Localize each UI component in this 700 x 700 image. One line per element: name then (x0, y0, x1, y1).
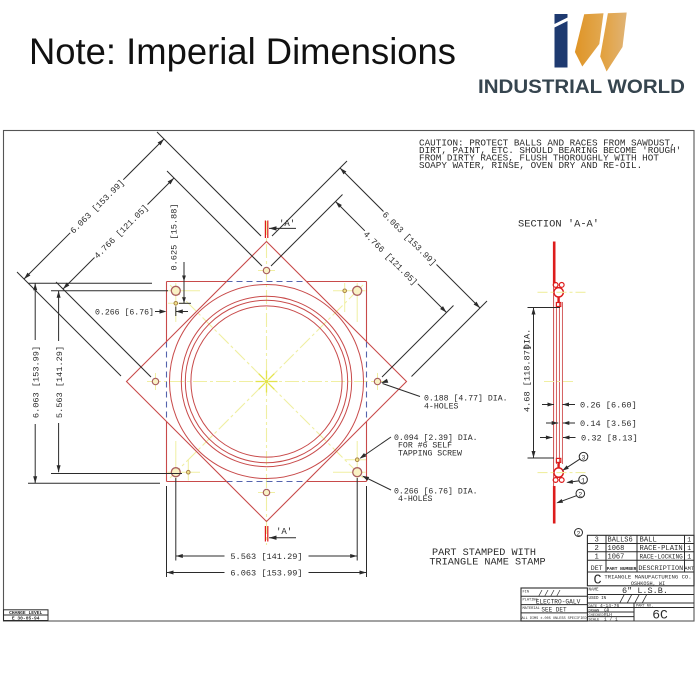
svg-text:DIA.: DIA. (522, 329, 532, 350)
svg-text:0.14 [3.56]: 0.14 [3.56] (580, 419, 637, 429)
svg-text:4-HOLES: 4-HOLES (424, 402, 458, 411)
svg-text:5.563 [141.29]: 5.563 [141.29] (230, 552, 302, 562)
svg-text:USED IN: USED IN (589, 597, 607, 601)
svg-text:FIN: FIN (523, 591, 529, 595)
svg-text:'A': 'A' (279, 219, 295, 229)
svg-text:1068: 1068 (608, 545, 625, 553)
svg-text:3: 3 (582, 455, 586, 462)
svg-text:ELECTRO-GALV: ELECTRO-GALV (536, 598, 581, 605)
svg-text:Note: Imperial Dimensions: Note: Imperial Dimensions (29, 31, 456, 72)
svg-text:2: 2 (577, 530, 581, 537)
svg-text:MATERIAL: MATERIAL (523, 607, 540, 611)
svg-text:SEE DET: SEE DET (541, 607, 567, 614)
svg-text:SECTION 'A-A': SECTION 'A-A' (518, 219, 599, 231)
svg-text:DRAWN: DRAWN (589, 609, 600, 613)
svg-text:PART NO.: PART NO. (636, 605, 653, 609)
svg-text:ALL DIMS ±.005 UNLESS SPECIFIE: ALL DIMS ±.005 UNLESS SPECIFIED (521, 617, 586, 621)
svg-text:DATE: DATE (589, 605, 598, 609)
svg-text:DET: DET (591, 565, 603, 572)
svg-text:BALLS6: BALLS6 (608, 537, 633, 545)
svg-text:CHECKED: CHECKED (589, 614, 604, 618)
svg-text:DESCRIPTION: DESCRIPTION (638, 565, 683, 573)
svg-text:SOAPY WATER, RINSE, OVEN DRY A: SOAPY WATER, RINSE, OVEN DRY AND RE-OIL. (419, 160, 642, 171)
svg-text:4.68 [118.87]: 4.68 [118.87] (522, 345, 532, 412)
svg-text:0.26 [6.60]: 0.26 [6.60] (580, 400, 637, 410)
svg-text:NAME: NAME (589, 589, 600, 593)
svg-text:4-HOLES: 4-HOLES (398, 495, 432, 504)
svg-text:0.266 [6.76]: 0.266 [6.76] (95, 308, 154, 318)
svg-text:6.063 [153.99]: 6.063 [153.99] (230, 569, 302, 579)
svg-text:1: 1 (687, 537, 691, 544)
svg-text:1: 1 (687, 553, 691, 560)
svg-text:BALL: BALL (640, 537, 657, 545)
svg-text:C: C (594, 574, 602, 589)
svg-text:4-14-76: 4-14-76 (600, 603, 620, 609)
svg-text:0.32 [8.13]: 0.32 [8.13] (581, 433, 638, 443)
svg-text:TRIANGLE NAME STAMP: TRIANGLE NAME STAMP (429, 558, 545, 569)
svg-text:TAPPING SCREW: TAPPING SCREW (398, 449, 462, 458)
svg-text:RACE-PLAIN: RACE-PLAIN (640, 545, 683, 553)
svg-text:CHANGE LEVEL: CHANGE LEVEL (9, 610, 42, 616)
svg-text:1: 1 (581, 478, 585, 485)
svg-text:INDUSTRIAL WORLD: INDUSTRIAL WORLD (478, 76, 685, 98)
svg-text:1067: 1067 (608, 553, 625, 561)
svg-text:TRIANGLE MANUFACTURING CO.: TRIANGLE MANUFACTURING CO. (604, 574, 691, 581)
svg-text:2: 2 (595, 545, 599, 553)
svg-text:0.625 [15.88]: 0.625 [15.88] (170, 203, 180, 270)
svg-text:1: 1 (595, 553, 599, 561)
svg-text:RACE-LOCKING: RACE-LOCKING (640, 553, 684, 560)
svg-text:SCALE: SCALE (589, 618, 600, 622)
svg-text:1: 1 (687, 545, 691, 552)
svg-text:'A': 'A' (276, 527, 292, 537)
svg-text:1 / 1: 1 / 1 (604, 617, 618, 623)
svg-text:6C: 6C (652, 608, 668, 623)
svg-text:E 30-05-94: E 30-05-94 (12, 616, 40, 622)
svg-text:PART NUMBER: PART NUMBER (607, 566, 637, 572)
svg-text:6.063 [153.99]: 6.063 [153.99] (32, 346, 42, 418)
svg-text:AMT: AMT (684, 566, 694, 572)
svg-text:5.563 [141.29]: 5.563 [141.29] (55, 346, 65, 418)
svg-text:3: 3 (595, 537, 599, 545)
svg-text:2: 2 (578, 491, 582, 498)
